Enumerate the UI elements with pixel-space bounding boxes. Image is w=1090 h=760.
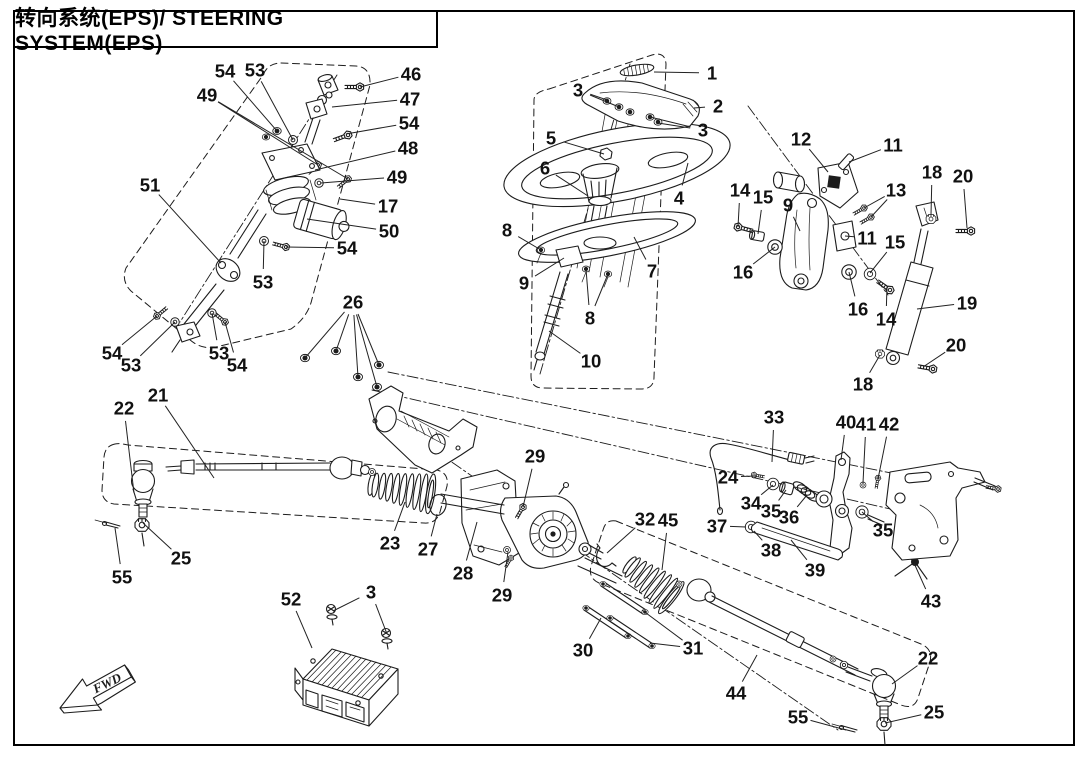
leader-line <box>964 189 967 228</box>
callout-16: 16 <box>733 262 754 283</box>
exploded-parts-diagram: FWD 545349464754484917505154535453535412… <box>0 0 1090 760</box>
callout-17: 17 <box>378 196 399 217</box>
leader-line <box>878 437 887 479</box>
leader-line <box>595 274 608 306</box>
callout-13: 13 <box>886 180 907 201</box>
callout-25: 25 <box>924 702 945 723</box>
callout-31: 31 <box>683 638 704 659</box>
callout-26: 26 <box>343 292 364 313</box>
leader-line <box>126 421 135 493</box>
callout-10: 10 <box>581 351 602 372</box>
callout-47: 47 <box>400 89 421 110</box>
leader-line <box>346 125 396 134</box>
callout-3: 3 <box>698 120 708 141</box>
callout-5: 5 <box>546 128 556 149</box>
callout-41: 41 <box>856 414 877 435</box>
callout-53: 53 <box>245 60 266 81</box>
callout-32: 32 <box>635 509 656 530</box>
callout-2: 2 <box>713 96 723 117</box>
leader-line <box>892 666 918 684</box>
callout-16: 16 <box>848 299 869 320</box>
leader-line <box>654 72 699 73</box>
leader-line <box>431 514 437 536</box>
callout-23: 23 <box>380 533 401 554</box>
callout-9: 9 <box>519 273 529 294</box>
callout-36: 36 <box>779 507 800 528</box>
leader-line <box>730 526 746 527</box>
callout-15: 15 <box>753 187 774 208</box>
leader-line <box>321 178 384 183</box>
callout-45: 45 <box>658 510 679 531</box>
callout-15: 15 <box>885 232 906 253</box>
callout-30: 30 <box>573 640 594 661</box>
callout-46: 46 <box>401 64 422 85</box>
leader-line <box>354 315 358 377</box>
leader-line <box>863 437 865 483</box>
leader-line <box>914 563 926 589</box>
callout-14: 14 <box>730 180 751 201</box>
leader-line <box>870 355 880 373</box>
leader-line <box>741 476 756 477</box>
callout-12: 12 <box>791 129 812 150</box>
steering-column-assembly-art <box>152 73 363 352</box>
leader-line <box>332 100 397 107</box>
callout-6: 6 <box>540 158 550 179</box>
callout-24: 24 <box>718 467 739 488</box>
leader-line <box>797 495 807 507</box>
callout-18: 18 <box>853 374 874 395</box>
callout-38: 38 <box>761 540 782 561</box>
callout-34: 34 <box>741 493 762 514</box>
callout-33: 33 <box>764 407 785 428</box>
callout-19: 19 <box>957 293 978 314</box>
callout-3: 3 <box>573 80 583 101</box>
callout-49: 49 <box>197 85 218 106</box>
callout-27: 27 <box>418 539 439 560</box>
steering-column-boundary <box>124 63 370 348</box>
callout-11: 11 <box>857 228 877 249</box>
right-boot <box>615 547 687 615</box>
callout-22: 22 <box>114 398 135 419</box>
leader-line <box>315 151 395 170</box>
callout-37: 37 <box>707 516 728 537</box>
callout-39: 39 <box>805 560 826 581</box>
callout-42: 42 <box>879 414 900 435</box>
callout-9: 9 <box>783 195 793 216</box>
callout-54: 54 <box>337 238 358 259</box>
leader-line <box>159 195 221 263</box>
callout-53: 53 <box>253 272 274 293</box>
callout-3: 3 <box>366 582 376 603</box>
callout-43: 43 <box>921 591 942 612</box>
leader-line <box>871 200 887 218</box>
leader-line <box>115 528 120 564</box>
callout-40: 40 <box>836 412 857 433</box>
leader-line <box>122 316 157 345</box>
callout-48: 48 <box>398 138 419 159</box>
callout-35: 35 <box>873 520 894 541</box>
callout-18: 18 <box>922 162 943 183</box>
callout-8: 8 <box>502 220 512 241</box>
callout-54: 54 <box>399 113 420 134</box>
callout-54: 54 <box>227 355 248 376</box>
leader-line <box>758 210 761 234</box>
callout-55: 55 <box>112 567 133 588</box>
callout-8: 8 <box>585 308 595 329</box>
callout-1: 1 <box>707 63 717 84</box>
fwd-arrow: FWD <box>60 665 135 713</box>
callout-55: 55 <box>788 707 809 728</box>
callout-25: 25 <box>171 548 192 569</box>
left-boot <box>365 464 437 514</box>
leader-line <box>849 150 881 162</box>
callout-7: 7 <box>647 261 657 282</box>
leader-line <box>360 77 398 87</box>
leader-line <box>263 241 264 269</box>
leader-line <box>376 604 387 634</box>
callout-29: 29 <box>492 585 513 606</box>
leader-line <box>870 252 887 273</box>
callout-49: 49 <box>387 167 408 188</box>
leader-line <box>772 430 773 462</box>
callout-11: 11 <box>883 135 903 156</box>
leader-line <box>586 269 589 305</box>
callout-50: 50 <box>379 221 400 242</box>
leader-line <box>549 331 580 353</box>
leader-line <box>143 523 171 549</box>
leader-line <box>753 247 775 264</box>
callout-4: 4 <box>674 188 685 209</box>
callout-53: 53 <box>121 355 142 376</box>
leader-line <box>395 502 406 531</box>
leader-line <box>885 715 921 723</box>
leader-line <box>340 199 375 204</box>
callout-54: 54 <box>215 61 236 82</box>
callout-20: 20 <box>946 335 967 356</box>
leader-line <box>642 610 683 640</box>
leader-line <box>886 286 887 306</box>
leader-line <box>140 322 175 356</box>
leader-line <box>607 528 635 553</box>
leader-line <box>212 313 217 340</box>
title-box: 转向系统(EPS)/ STEERING SYSTEM(EPS) <box>13 10 438 48</box>
ecu-screw <box>382 629 393 650</box>
callout-20: 20 <box>953 166 974 187</box>
parts-catalog-page: 转向系统(EPS)/ STEERING SYSTEM(EPS) <box>0 0 1090 760</box>
callout-14: 14 <box>876 309 897 330</box>
callout-28: 28 <box>453 563 474 584</box>
assembly-boundaries <box>102 54 931 706</box>
callout-51: 51 <box>140 175 161 196</box>
leader-line <box>296 611 312 648</box>
callout-44: 44 <box>726 683 747 704</box>
leader-line <box>662 533 667 570</box>
ecu-screw <box>327 605 338 626</box>
page-title: 转向系统(EPS)/ STEERING SYSTEM(EPS) <box>15 2 436 56</box>
leader-line <box>931 185 932 215</box>
leader-line <box>589 618 601 639</box>
callout-22: 22 <box>918 648 939 669</box>
leader-line <box>286 247 334 248</box>
leader-line <box>333 598 359 611</box>
callout-21: 21 <box>148 385 169 406</box>
studs-art <box>583 581 655 648</box>
callout-52: 52 <box>281 589 302 610</box>
leader-line <box>742 655 757 682</box>
callout-29: 29 <box>525 446 546 467</box>
